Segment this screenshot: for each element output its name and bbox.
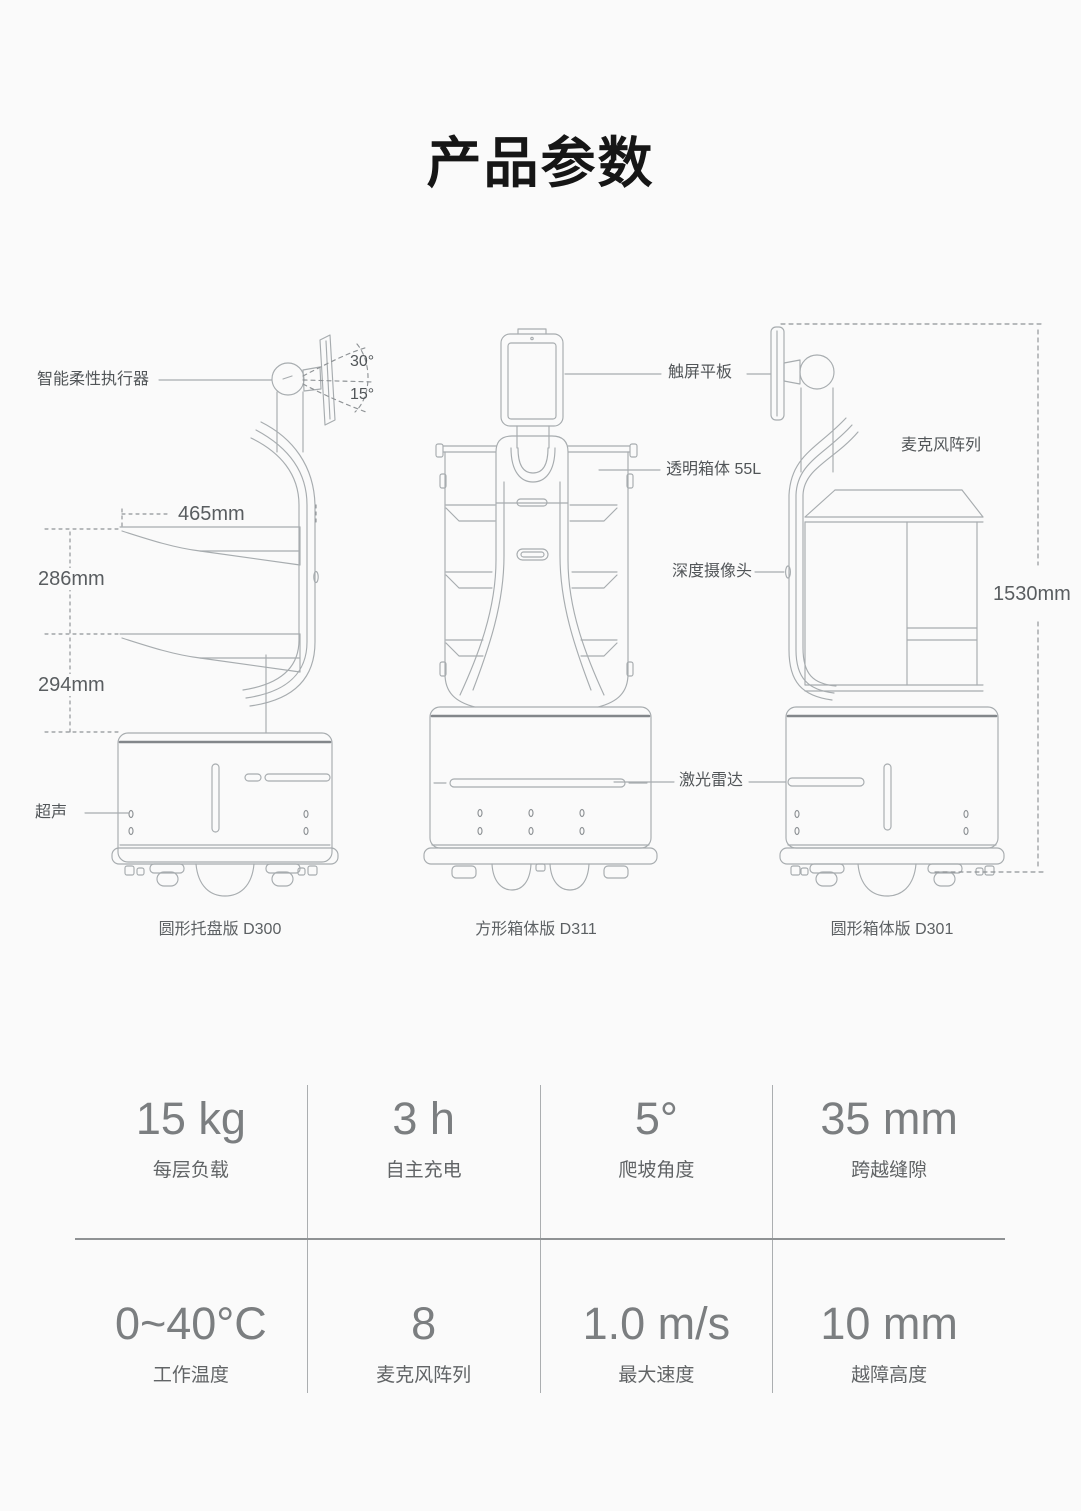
dim-tray-width: 465mm — [176, 503, 247, 525]
robot-d311-drawing — [424, 329, 657, 890]
dim-tray-gap-lower: 294mm — [36, 674, 107, 696]
spec-charging-label: 自主充电 — [386, 1159, 462, 1182]
callout-leader-lines — [85, 374, 786, 813]
robot-d300-drawing — [45, 335, 374, 896]
spec-mic-array-label: 麦克风阵列 — [376, 1364, 471, 1387]
spec-temperature-label: 工作温度 — [153, 1364, 229, 1387]
spec-gap-crossing-value: 35 mm — [820, 1091, 958, 1147]
spec-climb-angle-value: 5° — [635, 1091, 678, 1147]
robot-d301-drawing — [771, 324, 1044, 896]
spec-max-speed: 1.0 m/s 最大速度 — [540, 1240, 773, 1393]
caption-d300: 圆形托盘版 D300 — [120, 915, 320, 939]
spec-mic-array: 8 麦克风阵列 — [307, 1240, 540, 1393]
spec-sheet-page: 产品参数 — [0, 0, 1081, 1511]
caption-d311: 方形箱体版 D311 — [436, 915, 636, 939]
spec-grid: 15 kg 每层负载 3 h 自主充电 5° 爬坡角度 35 mm 跨越缝隙 0… — [75, 1085, 1005, 1393]
spec-charging: 3 h 自主充电 — [307, 1085, 540, 1238]
callout-transparent-box: 透明箱体 55L — [666, 461, 761, 479]
spec-row-1: 15 kg 每层负载 3 h 自主充电 5° 爬坡角度 35 mm 跨越缝隙 — [75, 1085, 1005, 1240]
spec-max-speed-label: 最大速度 — [618, 1364, 694, 1387]
spec-row-2: 0~40°C 工作温度 8 麦克风阵列 1.0 m/s 最大速度 10 mm 越… — [75, 1240, 1005, 1393]
callout-angle-down: 15° — [350, 386, 374, 404]
spec-temperature-value: 0~40°C — [115, 1296, 267, 1352]
spec-obstacle-height-value: 10 mm — [820, 1296, 958, 1352]
spec-gap-crossing-label: 跨越缝隙 — [851, 1159, 927, 1182]
spec-climb-angle: 5° 爬坡角度 — [540, 1085, 773, 1238]
spec-max-speed-value: 1.0 m/s — [583, 1296, 731, 1352]
spec-temperature: 0~40°C 工作温度 — [75, 1240, 307, 1393]
spec-payload: 15 kg 每层负载 — [75, 1085, 307, 1238]
callout-angle-up: 30° — [350, 353, 374, 371]
callout-actuator: 智能柔性执行器 — [37, 371, 149, 389]
callout-lidar: 激光雷达 — [679, 772, 743, 790]
spec-climb-angle-label: 爬坡角度 — [618, 1159, 694, 1182]
callout-ultrasonic: 超声 — [35, 804, 67, 822]
dim-tray-gap-upper: 286mm — [36, 568, 107, 590]
spec-obstacle-height-label: 越障高度 — [851, 1364, 927, 1387]
spec-payload-label: 每层负载 — [153, 1159, 229, 1182]
callout-mic-array: 麦克风阵列 — [901, 437, 981, 455]
spec-gap-crossing: 35 mm 跨越缝隙 — [772, 1085, 1005, 1238]
caption-d301: 圆形箱体版 D301 — [792, 915, 992, 939]
callout-touchscreen: 触屏平板 — [668, 364, 732, 382]
spec-charging-value: 3 h — [392, 1091, 455, 1147]
spec-payload-value: 15 kg — [136, 1091, 246, 1147]
spec-obstacle-height: 10 mm 越障高度 — [772, 1240, 1005, 1393]
callout-depth-camera: 深度摄像头 — [672, 563, 752, 581]
spec-mic-array-value: 8 — [411, 1296, 436, 1352]
dim-height: 1530mm — [991, 583, 1073, 605]
robot-diagrams — [0, 0, 1081, 980]
